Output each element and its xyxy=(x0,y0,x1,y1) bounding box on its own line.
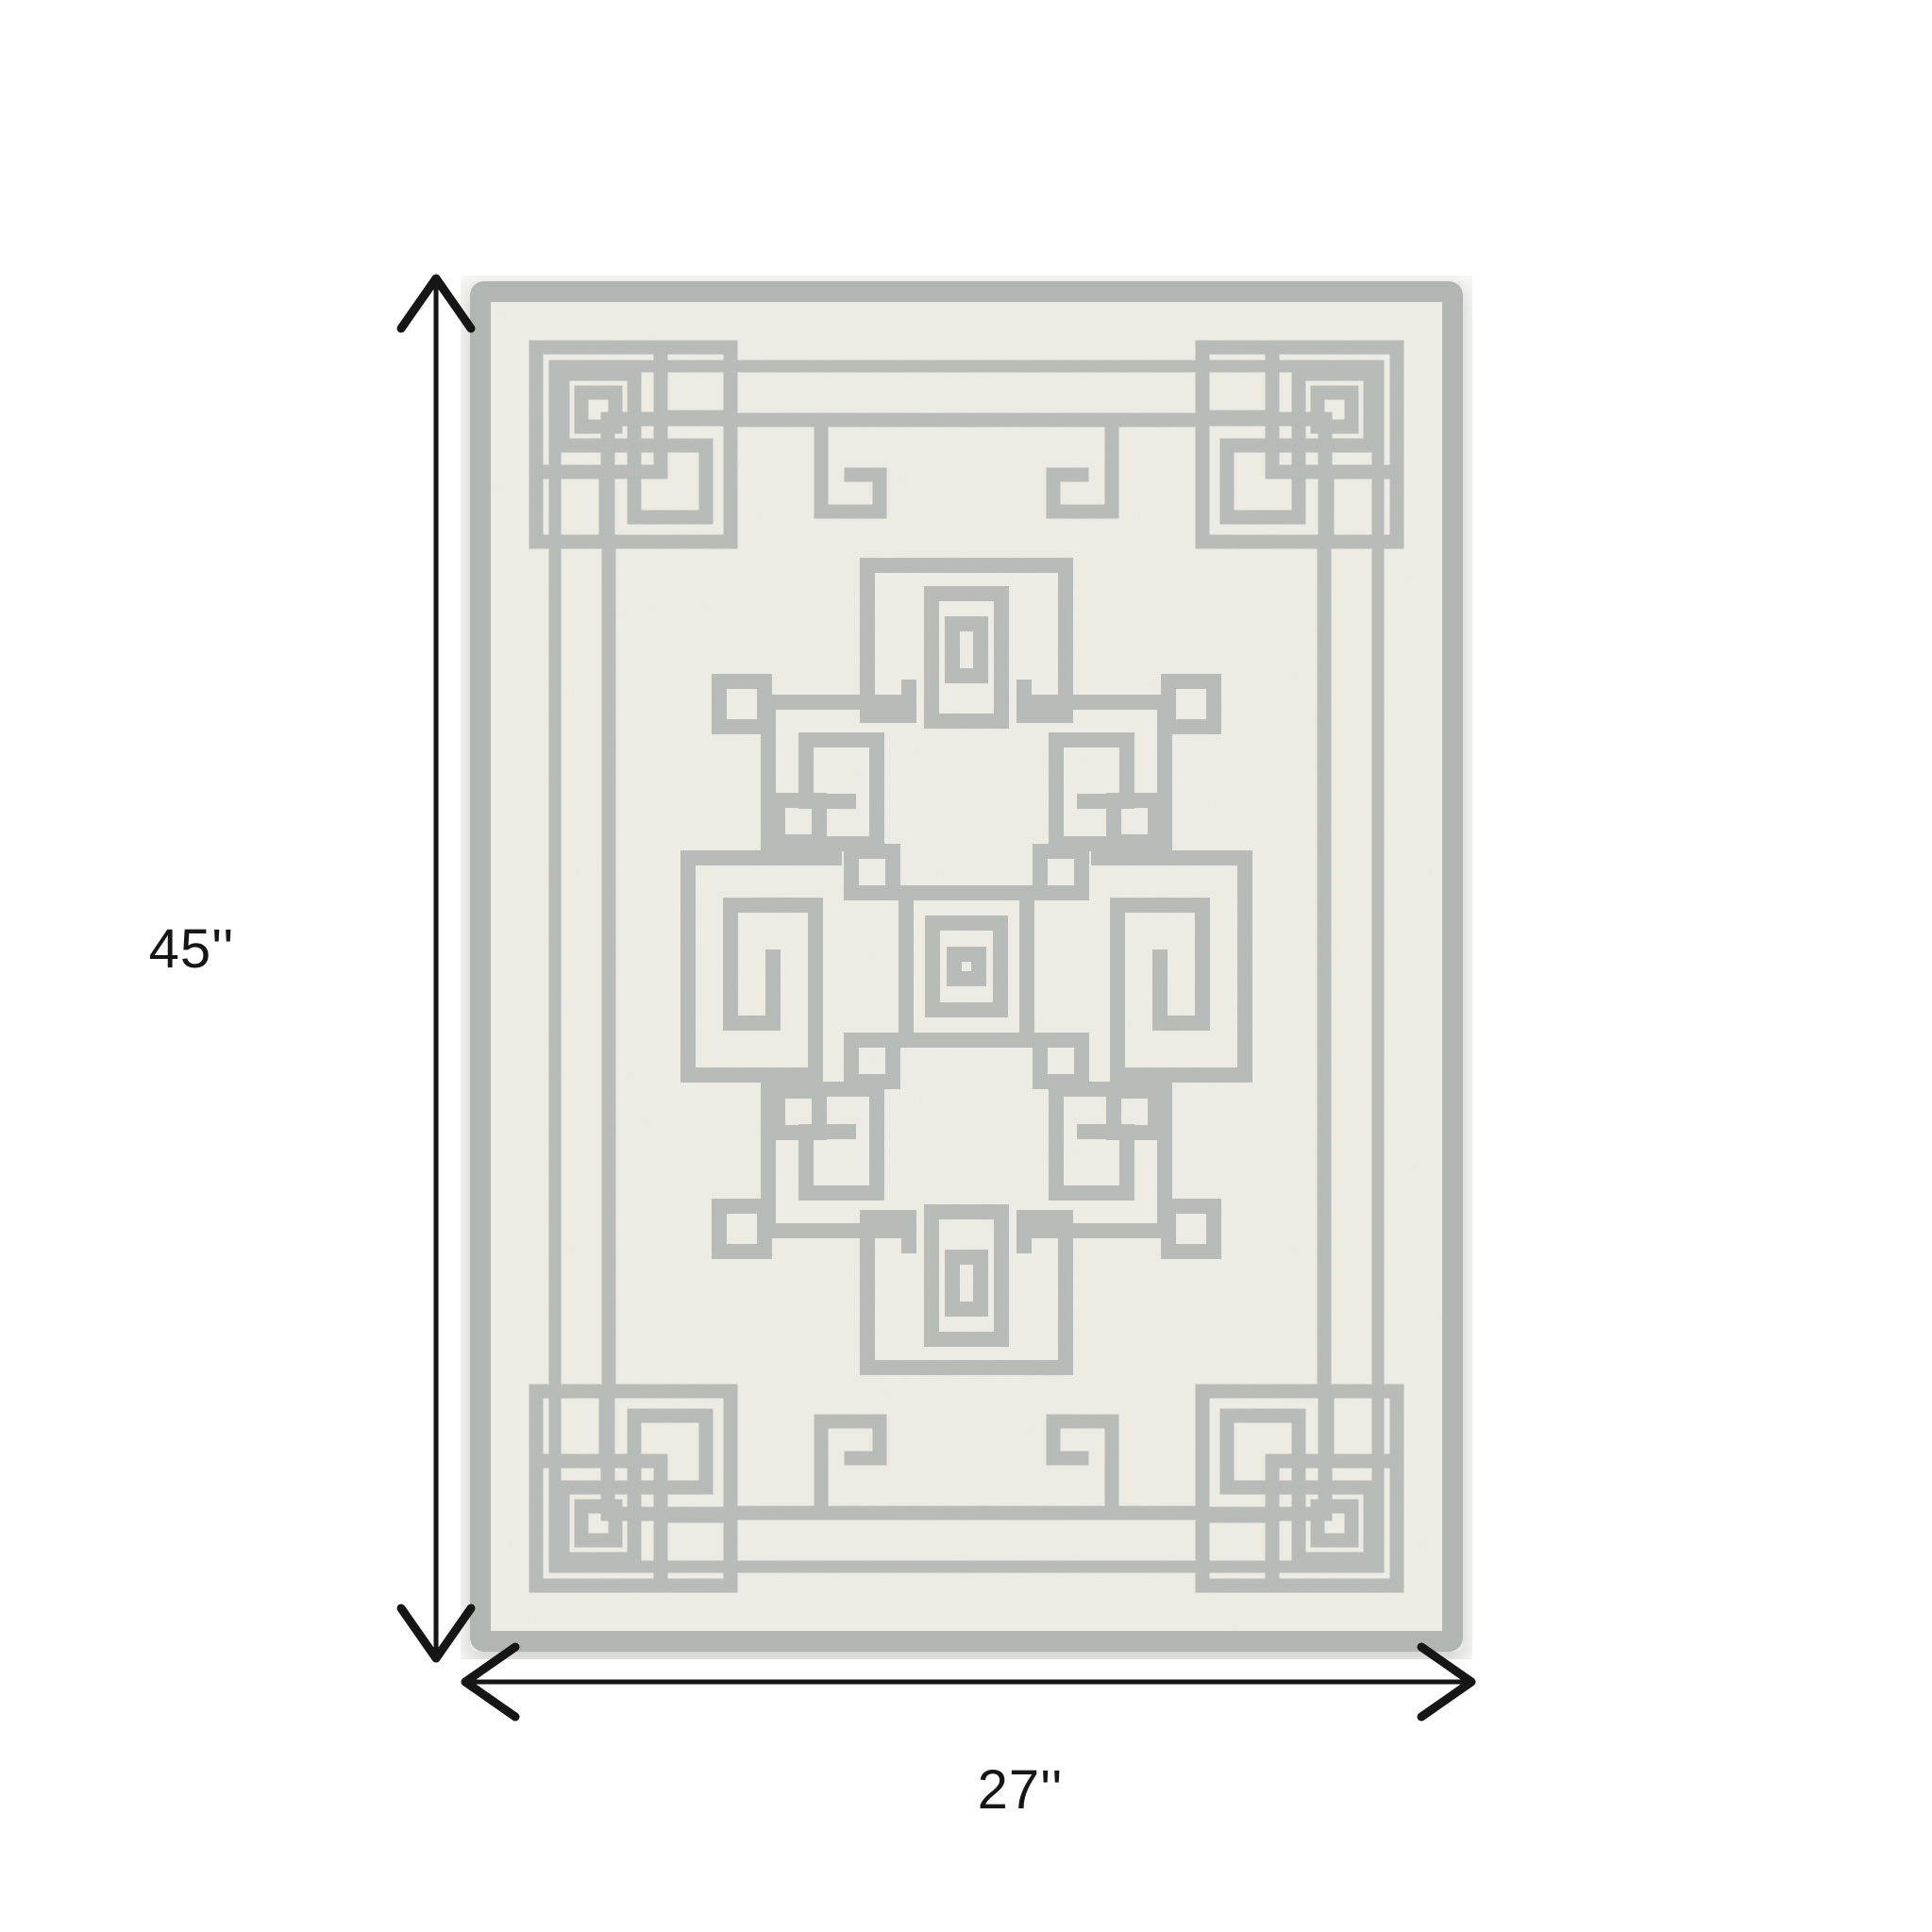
wool-texture-overlay xyxy=(470,281,1463,1652)
product-photo xyxy=(461,276,1472,1659)
page-canvas: 45'' 27'' xyxy=(0,0,1932,1932)
height-dimension-arrow xyxy=(393,262,479,1674)
width-dimension-label: 27'' xyxy=(978,1763,1064,1818)
height-dimension-label: 45'' xyxy=(149,922,235,977)
rug-image xyxy=(461,276,1472,1659)
width-dimension-arrow xyxy=(451,1638,1486,1725)
rug xyxy=(470,281,1463,1652)
